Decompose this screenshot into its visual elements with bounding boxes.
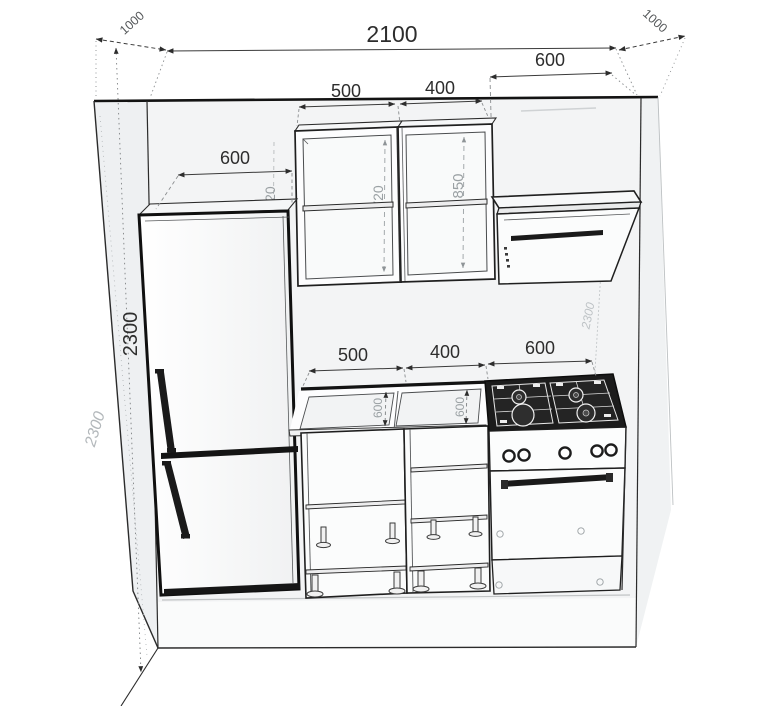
dim-side-left-label: 1000 xyxy=(117,8,147,37)
oven-drawer xyxy=(492,556,622,594)
floor xyxy=(158,598,636,648)
dim-room-width-label: 2100 xyxy=(366,21,417,47)
counter-opening-right xyxy=(396,389,481,426)
wall-cabinets: 720 850 xyxy=(295,118,496,286)
oven-door xyxy=(490,468,625,560)
dim-base-cab-a-label: 500 xyxy=(338,345,368,365)
burner xyxy=(512,404,534,426)
kitchen-elevation-drawing: 2100 1000 1000 600 500 400 2300 2300 230… xyxy=(0,0,774,706)
dim-room-height-label: 2300 xyxy=(120,312,142,357)
dim-side-right-line xyxy=(619,36,685,50)
oven-knob xyxy=(605,444,616,455)
dim-stove-width-label: 600 xyxy=(525,338,555,358)
floor-corner-left xyxy=(121,648,158,706)
dim-side-right-label: 1000 xyxy=(640,6,670,35)
dim-hood-width-line xyxy=(490,73,612,77)
oven-knob xyxy=(518,449,529,460)
refrigerator xyxy=(139,199,300,595)
stove xyxy=(485,374,626,594)
dim-base-cab-b-label: 400 xyxy=(430,342,460,362)
floor-front-edge xyxy=(158,647,636,648)
oven-control-panel xyxy=(489,427,626,471)
base-cabinet-500 xyxy=(301,429,407,598)
dim-side-left-line xyxy=(96,39,166,50)
dim-upper-cab-b-height-label: 850 xyxy=(450,173,467,198)
dim-upper-cab-b-label: 400 xyxy=(425,78,455,98)
oven-knob xyxy=(591,445,602,456)
oven-handle-bracket xyxy=(501,480,508,489)
dim-counter-depth-a-label: 600 xyxy=(371,398,385,418)
dim-counter-depth-b-label: 600 xyxy=(453,397,467,417)
oven-knob xyxy=(503,450,514,461)
oven-handle-bracket xyxy=(606,473,613,482)
dim-hood-width-label: 600 xyxy=(535,50,565,70)
dim-fridge-width-label: 600 xyxy=(220,148,250,168)
dim-upper-cab-a-label: 500 xyxy=(331,81,361,101)
dim-room-height-outer-label: 2300 xyxy=(82,410,109,450)
oven-knob xyxy=(559,447,570,458)
gas-cooktop xyxy=(485,374,626,431)
right-wall xyxy=(636,97,671,647)
drawing-canvas: 2100 1000 1000 600 500 400 2300 2300 230… xyxy=(0,0,774,706)
